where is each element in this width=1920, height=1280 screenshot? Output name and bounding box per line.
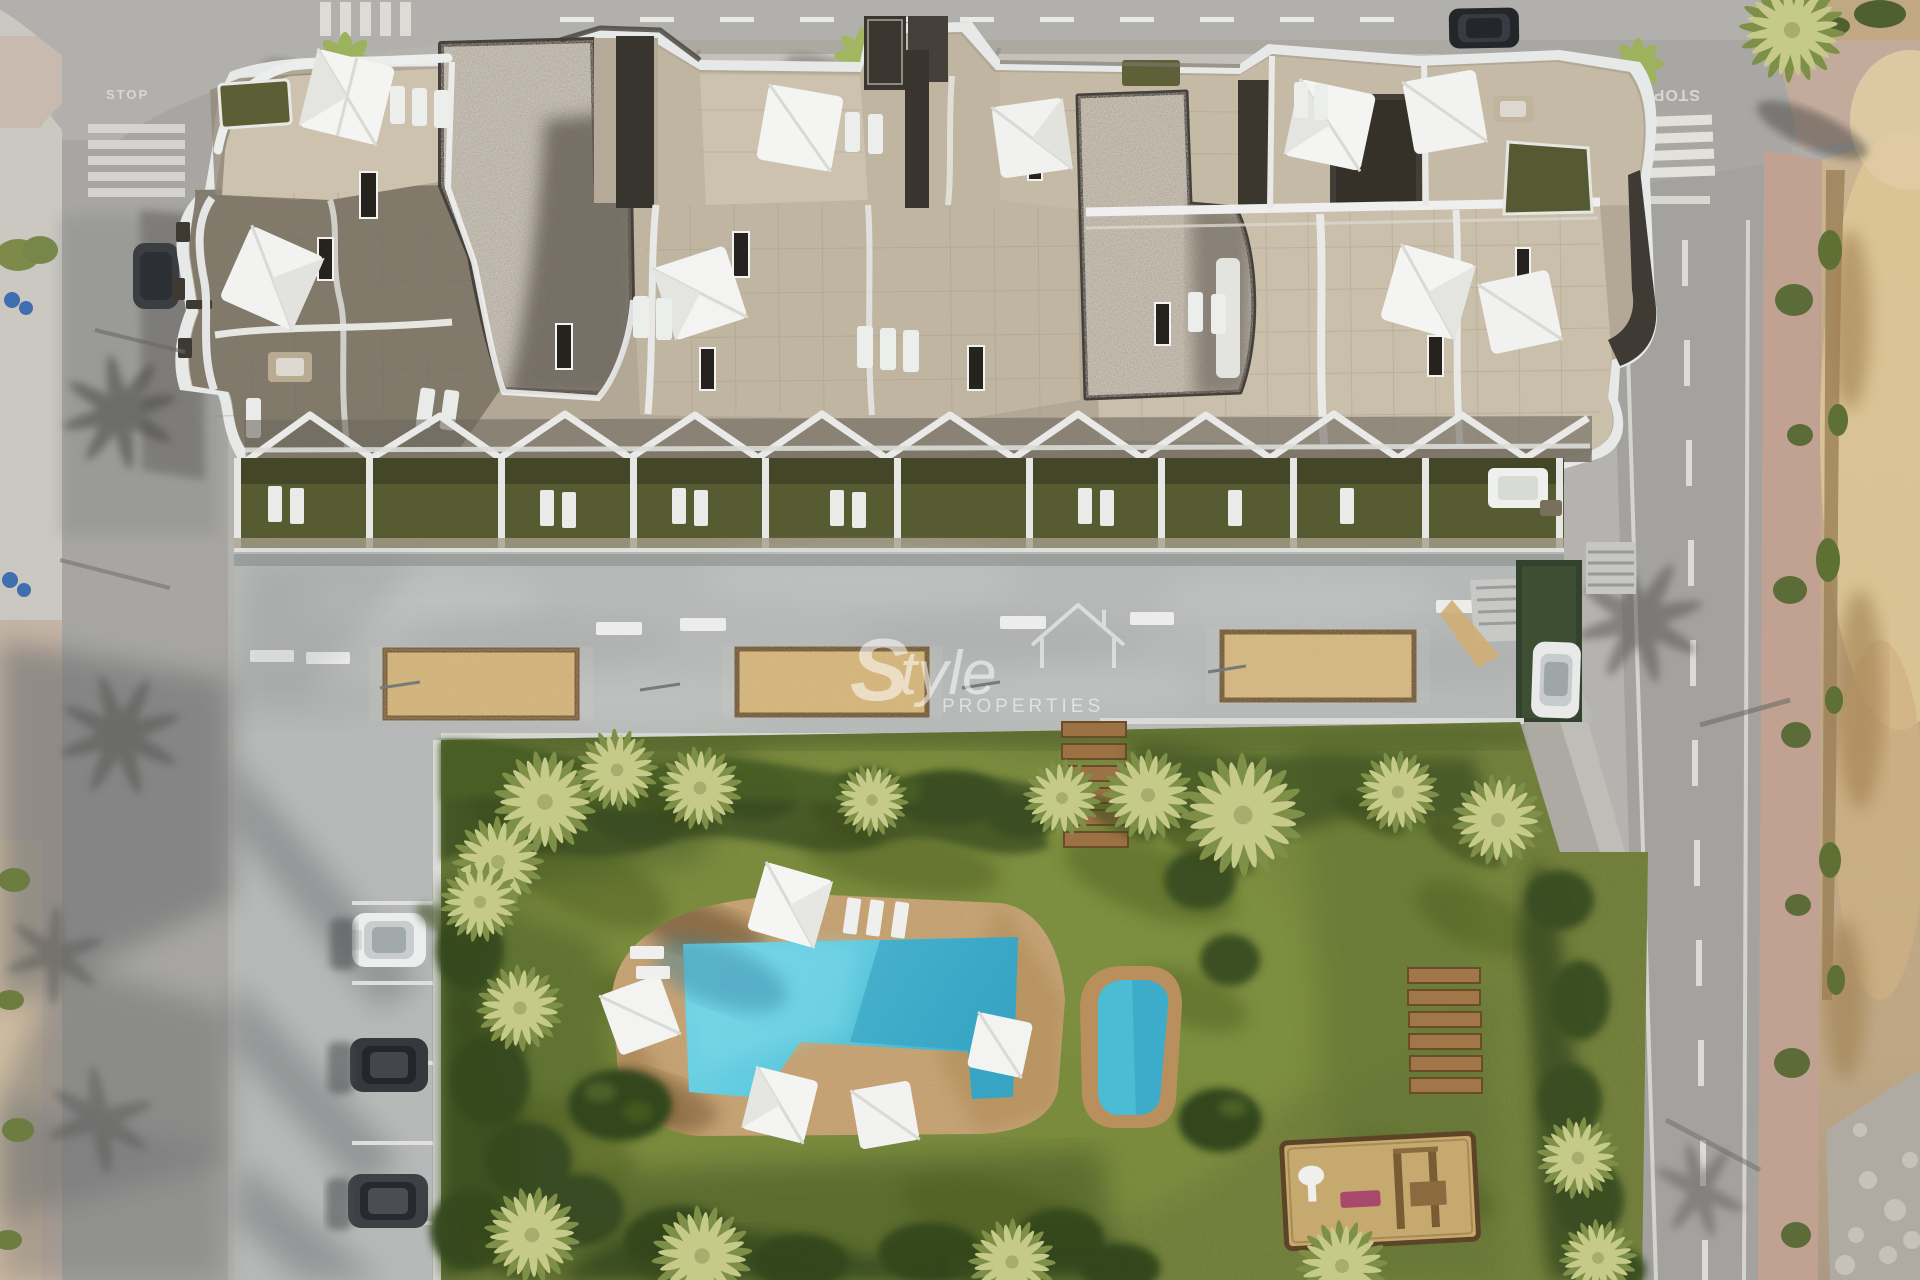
- svg-text:STOP: STOP: [106, 87, 149, 102]
- svg-text:STOP: STOP: [1653, 86, 1700, 103]
- svg-text:PROPERTIES: PROPERTIES: [942, 696, 1104, 717]
